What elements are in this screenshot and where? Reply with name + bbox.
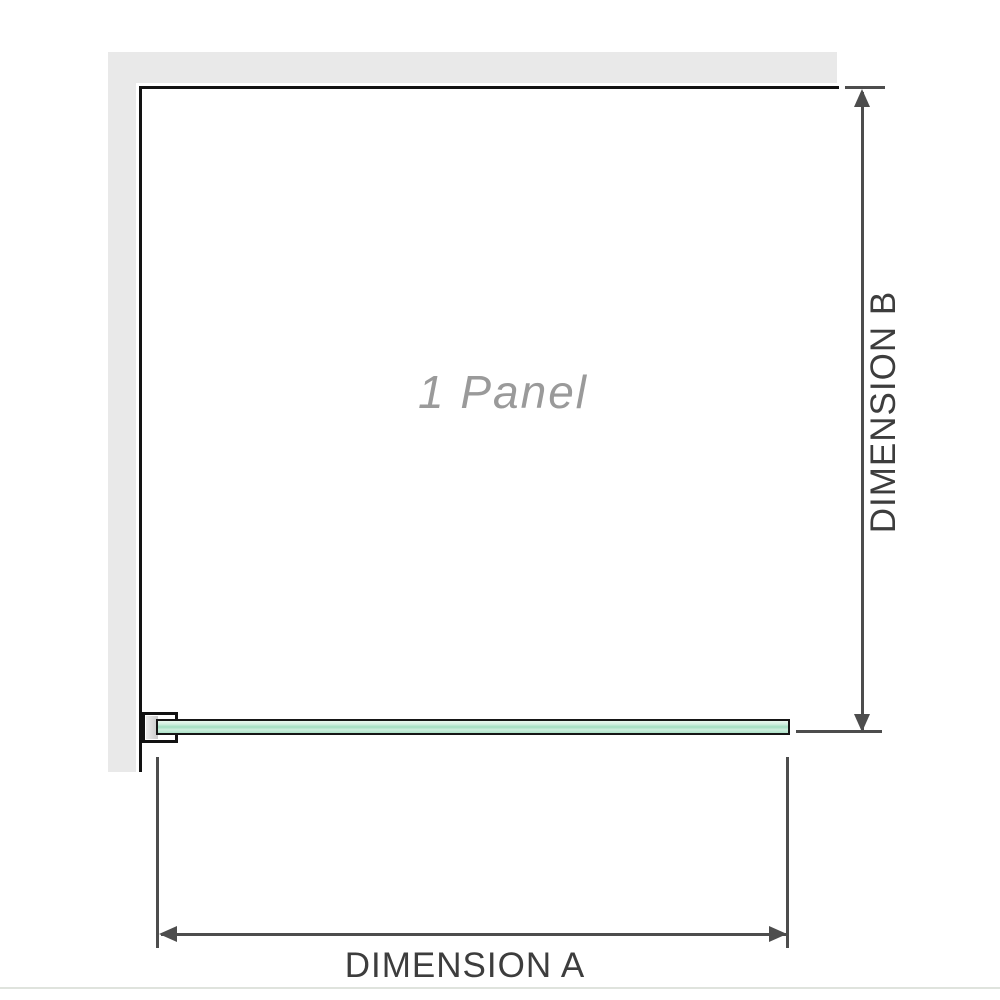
panel-count-label: 1 Panel	[395, 362, 611, 422]
bottom-divider	[0, 987, 1000, 989]
dimension-b-arrowhead-top-icon	[854, 89, 870, 107]
dimension-a-label: DIMENSION A	[315, 946, 615, 986]
wall-left	[108, 52, 136, 772]
dimension-a-extension-right	[786, 757, 789, 948]
shower-screen-diagram: 1 Panel DIMENSION B DIMENSION A	[0, 0, 1000, 1000]
glass-panel	[156, 719, 790, 735]
dimension-b-extension-top	[845, 86, 885, 89]
dimension-b-label: DIMENSION B	[864, 272, 904, 552]
dimension-a-arrow-line	[161, 933, 786, 936]
wall-edge-left-line	[139, 86, 142, 772]
wall-top	[108, 52, 837, 83]
wall-edge-top-line	[139, 86, 839, 89]
dimension-a-extension-left	[156, 757, 159, 948]
dimension-a-arrowhead-left-icon	[159, 926, 177, 942]
dimension-b-extension-bottom	[796, 730, 882, 733]
dimension-a-arrowhead-right-icon	[769, 926, 787, 942]
